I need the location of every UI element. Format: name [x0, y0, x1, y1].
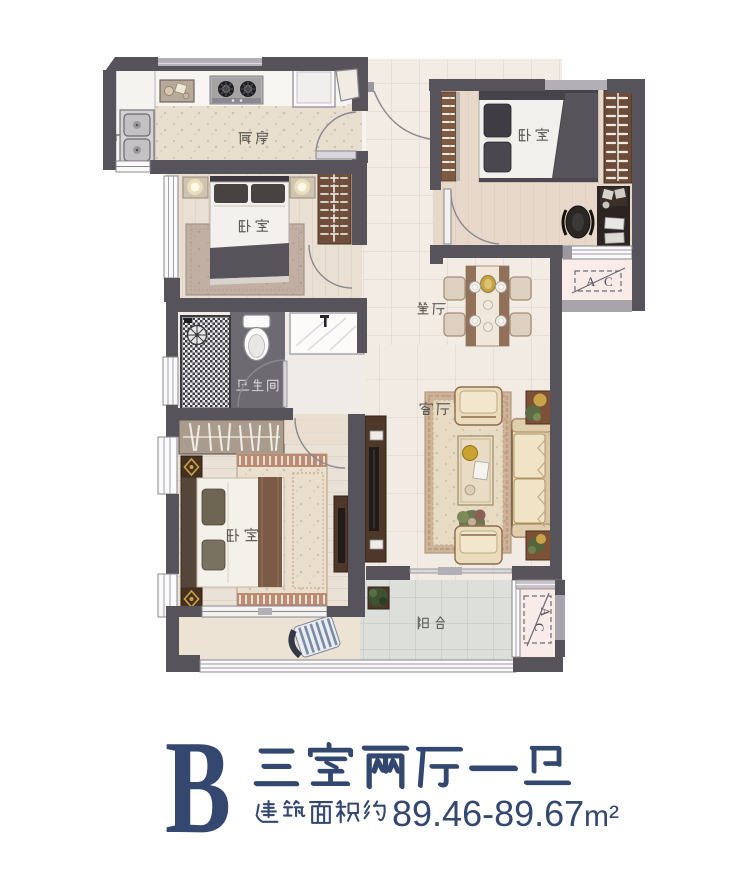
svg-text:89.46-89.67: 89.46-89.67 — [392, 793, 584, 834]
svg-text:A: A — [586, 274, 596, 289]
svg-text:m²: m² — [584, 800, 619, 833]
svg-text:B: B — [165, 713, 231, 861]
